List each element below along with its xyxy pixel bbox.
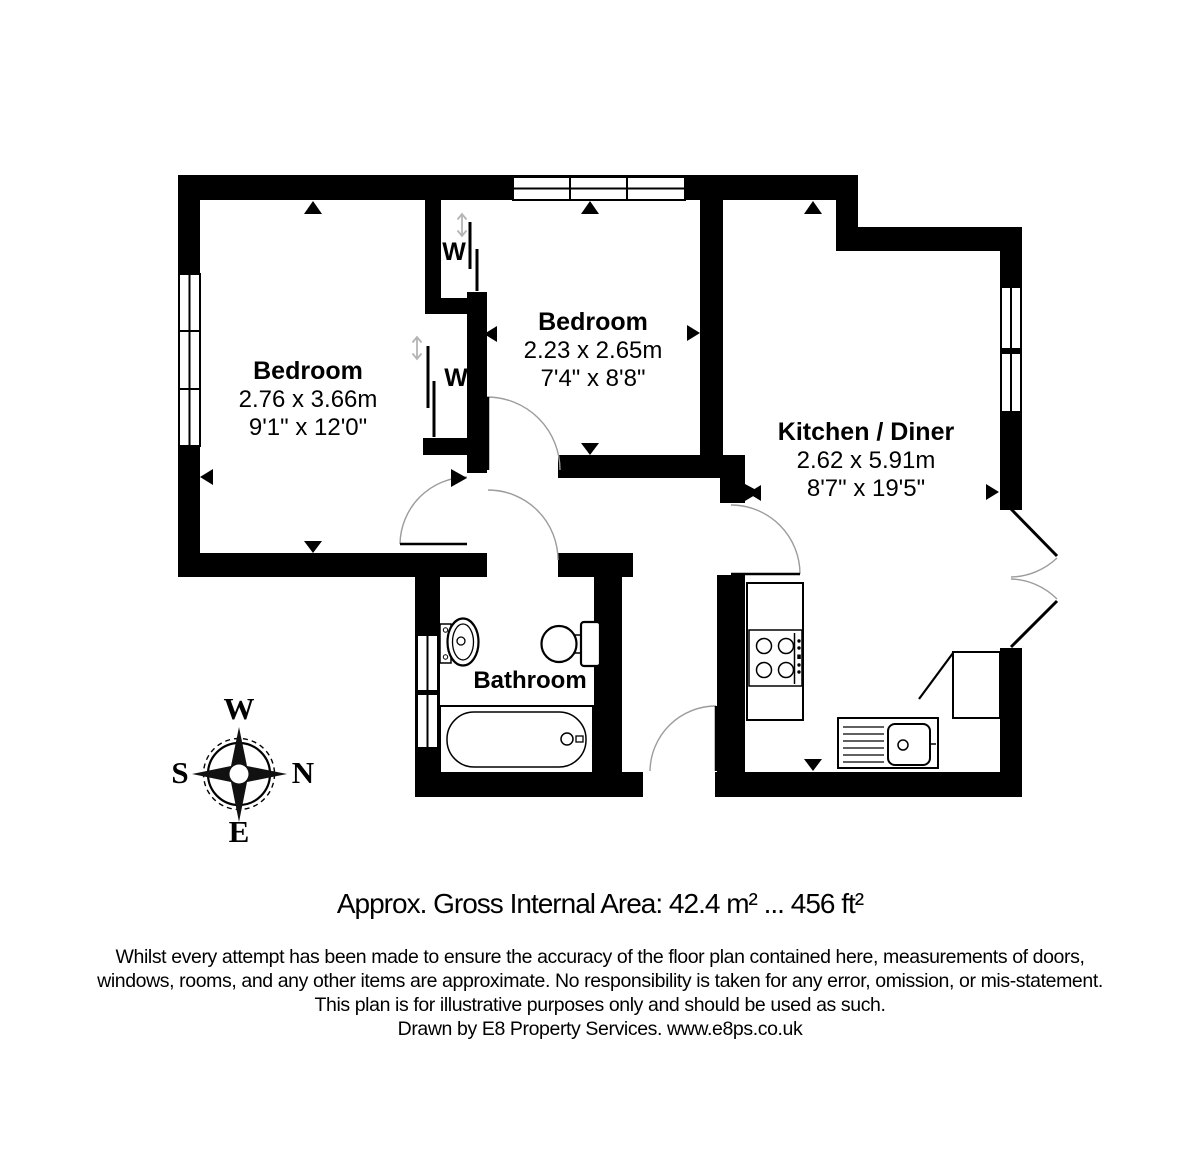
compass-letter-top: W	[224, 691, 255, 726]
door-arc-kitchen	[731, 505, 800, 574]
wall-bottom-bathroom	[415, 772, 643, 797]
wardrobe1-label: W	[442, 238, 466, 267]
window-bathroom-1	[417, 635, 438, 691]
bathtub-icon	[440, 706, 593, 773]
disclaimer-line-1: Whilst every attempt has been made to en…	[0, 946, 1200, 969]
floorplan-page: W N S E Bedroom 2.76 x 3.66m 9'1" x 12'0…	[0, 0, 1200, 1155]
door-arrow-bedroom1-icon	[451, 469, 467, 487]
door-leaf-patio-upper	[1011, 509, 1057, 556]
wall-wardrobe2-bottom	[423, 438, 467, 455]
kitchen-imperial: 8'7" x 19'5"	[778, 475, 954, 503]
wall-wardrobe1-left	[425, 198, 441, 313]
gross-internal-area: Approx. Gross Internal Area: 42.4 m² ...…	[0, 888, 1200, 920]
door-leaf-patio-lower	[1011, 601, 1057, 647]
room-label-kitchen: Kitchen / Diner 2.62 x 5.91m 8'7" x 19'5…	[778, 418, 954, 503]
window-kitchen-right-2	[1001, 353, 1021, 412]
marker-bedroom1-top-icon	[304, 201, 322, 214]
wall-bathroom-right	[594, 577, 622, 773]
kitchen-name: Kitchen / Diner	[778, 418, 954, 447]
door-arc-entrance	[650, 706, 716, 771]
wall-bedroom2-right	[700, 198, 723, 478]
disclaimer-line-3: This plan is for illustrative purposes o…	[0, 994, 1200, 1017]
bedroom1-metric: 2.76 x 3.66m	[239, 386, 378, 414]
compass-rose: W N S E	[171, 691, 314, 849]
bedroom1-imperial: 9'1" x 12'0"	[239, 414, 378, 442]
bedroom2-name: Bedroom	[524, 308, 663, 337]
marker-bedroom2-right-icon	[687, 325, 700, 341]
wall-bottom-kitchen	[715, 772, 1022, 797]
marker-kitchen-bottom-icon	[804, 759, 822, 771]
wall-top-right	[836, 227, 1022, 251]
wardrobe2-arrow-icon	[413, 337, 422, 359]
marker-bedroom1-left-icon	[200, 469, 213, 485]
room-label-bedroom1: Bedroom 2.76 x 3.66m 9'1" x 12'0"	[239, 357, 378, 442]
compass-hub	[230, 765, 249, 784]
marker-bedroom2-bottom-icon	[581, 443, 599, 455]
hob-icon	[749, 630, 802, 686]
kitchen-metric: 2.62 x 5.91m	[778, 447, 954, 475]
window-kitchen-right-1	[1001, 287, 1021, 349]
wall-wardrobe1-bottom	[425, 298, 468, 314]
door-arc-patio-lower	[1011, 579, 1057, 599]
wall-bedroom2-bottom	[558, 455, 723, 478]
door-arc-bedroom2	[487, 397, 560, 470]
door-arc-bathroom	[488, 490, 558, 560]
kitchen-fixtures	[747, 583, 1000, 768]
sink-icon	[440, 619, 479, 666]
wall-kitchen-stub	[720, 455, 745, 503]
wall-bedroom1-bottom	[178, 553, 487, 577]
wall-kitchen-left	[717, 575, 745, 775]
window-bedroom2-top	[513, 177, 685, 200]
bedroom2-imperial: 7'4" x 8'8"	[524, 365, 663, 393]
room-label-bedroom2: Bedroom 2.23 x 2.65m 7'4" x 8'8"	[524, 308, 663, 393]
wardrobe2-label: W	[444, 364, 468, 393]
kitchen-sink-icon	[838, 718, 938, 768]
credit-line: Drawn by E8 Property Services. www.e8ps.…	[0, 1018, 1200, 1041]
marker-kitchen-top-icon	[804, 201, 822, 214]
room-label-bathroom: Bathroom	[473, 667, 586, 695]
marker-bedroom1-bottom-icon	[304, 541, 322, 553]
toilet-icon	[542, 622, 601, 666]
door-arc-bedroom1	[400, 477, 467, 544]
window-bathroom-2	[417, 694, 438, 748]
compass-letter-right: N	[292, 755, 314, 790]
compass-letter-bottom: E	[229, 814, 250, 849]
door-arc-patio-upper	[1011, 558, 1057, 577]
wall-mid-column	[467, 292, 487, 473]
disclaimer-line-2: windows, rooms, and any other items are …	[0, 970, 1200, 993]
window-bedroom1-left	[179, 274, 200, 446]
wardrobe1-arrow-icon	[458, 214, 467, 236]
bedroom1-name: Bedroom	[239, 357, 378, 386]
compass-letter-left: S	[171, 755, 188, 790]
marker-bedroom2-top-icon	[581, 201, 599, 214]
bedroom2-metric: 2.23 x 2.65m	[524, 337, 663, 365]
wall-bathroom-top	[558, 553, 633, 577]
floor-plan-drawing: W N S E	[0, 0, 1200, 870]
marker-kitchen-right-icon	[986, 484, 999, 500]
kitchen-corner-unit	[919, 652, 1000, 718]
bathroom-fixtures	[440, 619, 600, 774]
